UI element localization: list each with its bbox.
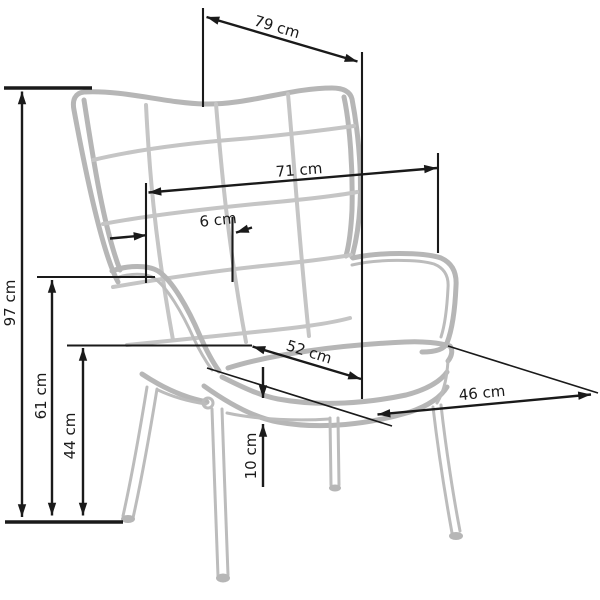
back-left-foot <box>121 515 135 523</box>
front-left-leg-outer <box>212 409 218 576</box>
back-width-label: 71 cm <box>275 159 323 181</box>
back-right-leg <box>329 418 341 492</box>
armchair-dimension-diagram: 79 cm 71 cm 6 cm 97 cm 61 cm 44 cm 52 cm… <box>0 0 600 600</box>
back-right-leg-inner <box>338 418 339 485</box>
dimension-annotations: 79 cm 71 cm 6 cm 97 cm 61 cm 44 cm 52 cm… <box>1 8 598 522</box>
front-right-leg-inner <box>441 405 460 531</box>
seat-width-label: 46 cm <box>458 382 506 404</box>
left-armrest-inner <box>116 274 212 370</box>
front-right-foot <box>449 532 463 540</box>
seat-width-left-extension-line <box>207 368 392 426</box>
backrest-seam-horizontal-4 <box>127 318 350 345</box>
front-left-foot <box>216 574 230 583</box>
back-right-foot <box>329 485 341 492</box>
back-left-leg <box>121 387 157 523</box>
underseat-rail-right <box>227 413 329 420</box>
diagram-canvas: 79 cm 71 cm 6 cm 97 cm 61 cm 44 cm 52 cm… <box>0 0 600 600</box>
right-armrest-inner <box>352 260 448 337</box>
backrest-seam-vertical-1 <box>146 105 173 340</box>
wing-offset-right-arrow <box>236 228 252 233</box>
seat-front-piping <box>222 372 447 403</box>
backrest-seam-horizontal-1 <box>93 126 354 160</box>
back-left-leg-outer <box>123 387 147 516</box>
armchair-drawing <box>73 88 463 583</box>
seat-height-label: 44 cm <box>61 413 79 460</box>
cushion-thickness-label: 10 cm <box>242 433 260 480</box>
seat-top-edge <box>228 342 452 368</box>
front-left-leg-inner <box>222 409 228 575</box>
wing-offset-left-arrow <box>110 235 147 238</box>
front-right-leg <box>433 405 463 540</box>
front-left-leg <box>203 398 230 583</box>
armrest-height-label: 61 cm <box>32 373 50 420</box>
total-height-label: 97 cm <box>1 280 19 327</box>
back-right-leg-outer <box>330 418 331 485</box>
